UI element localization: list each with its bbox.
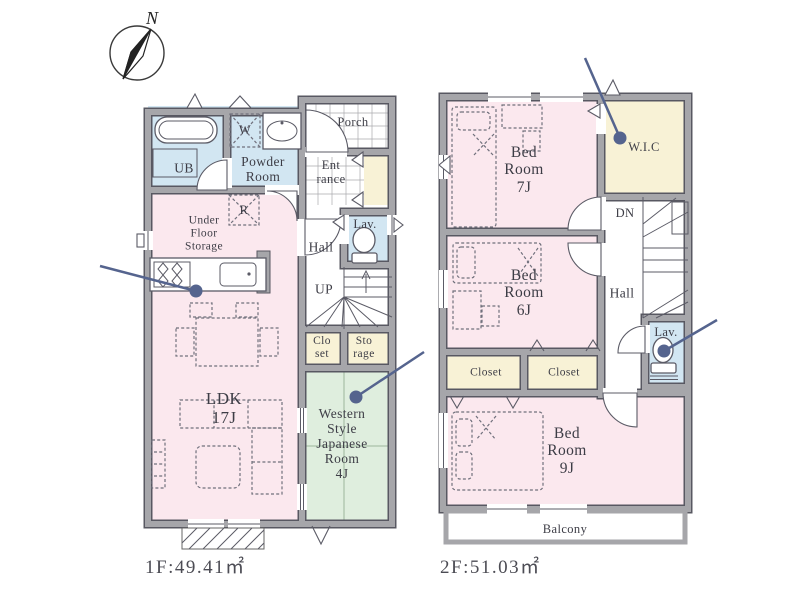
- vent-icon: [229, 96, 251, 108]
- room-ldk: [148, 190, 304, 524]
- caption-floor2-area: 2F:51.03㎡: [440, 552, 541, 579]
- label-balcony: Balcony: [543, 522, 587, 536]
- label-lav-1f: Lav.: [353, 217, 376, 231]
- deck: [182, 528, 264, 549]
- stairwell-2f: [643, 197, 688, 318]
- label-up: UP: [315, 281, 333, 296]
- label-under-floor-storage: Under Floor Storage: [185, 215, 223, 254]
- label-washer: W: [239, 123, 251, 137]
- label-powder-room: Powder Room: [241, 154, 285, 184]
- label-japanese-room: Western Style Japanese Room 4J: [316, 406, 367, 482]
- shoe-cabinet: [364, 156, 388, 205]
- label-bed6: Bed Room 6J: [504, 267, 544, 319]
- label-entrance: Ent rance: [316, 158, 345, 186]
- label-wic: W.I.C: [628, 140, 659, 154]
- label-bed9: Bed Room 9J: [547, 425, 587, 477]
- toilet-1f: [353, 228, 375, 253]
- label-closet-left: Closet: [470, 367, 502, 380]
- label-storage-1f: Sto rage: [353, 335, 374, 361]
- label-ub: UB: [174, 160, 194, 175]
- vent-icon: [605, 80, 620, 95]
- label-porch: Porch: [337, 115, 368, 129]
- label-hall-1f: Hall: [309, 239, 334, 254]
- window-handle: [137, 234, 144, 247]
- vanity: [263, 113, 301, 149]
- compass-north-label: N: [146, 8, 158, 29]
- label-closet-right: Closet: [548, 367, 580, 380]
- floorplan-graphics: [0, 0, 800, 599]
- label-hall-2f: Hall: [610, 285, 635, 300]
- vent-icon: [394, 218, 403, 232]
- caption-floor1-area: 1F:49.41㎡: [145, 552, 246, 579]
- window-swing-icon: [312, 526, 330, 544]
- floorplan-page: N UB Powder Room W R Porch Ent rance Und…: [0, 0, 800, 599]
- label-closet-1f: Clo set: [313, 335, 331, 361]
- label-bed7: Bed Room 7J: [504, 144, 544, 196]
- label-lav-2f: Lav.: [654, 325, 677, 339]
- vent-icon: [187, 94, 202, 108]
- label-ldk: LDK 17J: [206, 389, 242, 427]
- label-fridge: R: [240, 203, 249, 217]
- compass: [110, 26, 164, 80]
- label-dn: DN: [616, 206, 635, 220]
